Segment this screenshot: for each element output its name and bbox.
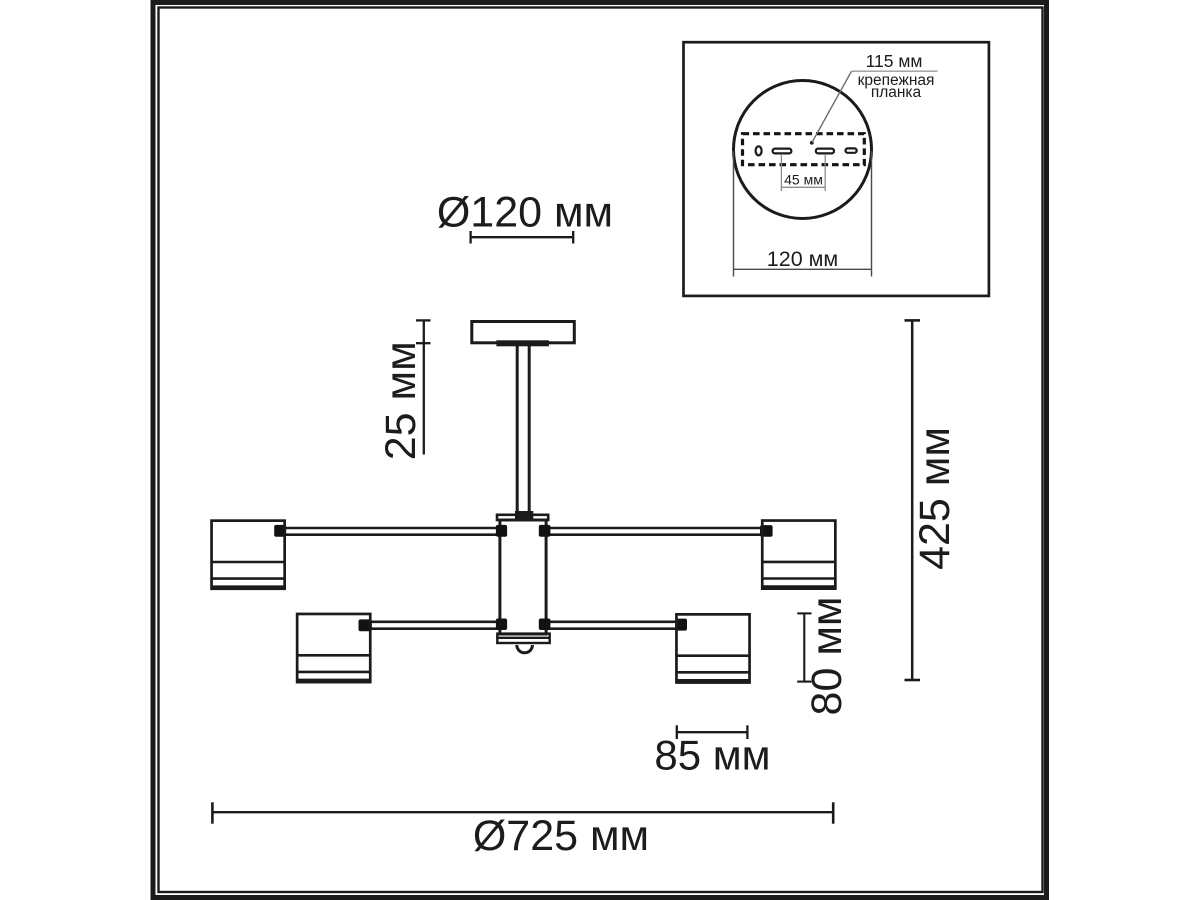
svg-text:425 мм: 425 мм [911, 427, 959, 570]
svg-text:Ø725 мм: Ø725 мм [473, 812, 649, 860]
svg-text:120 мм: 120 мм [767, 247, 838, 271]
svg-text:45 мм: 45 мм [784, 172, 823, 188]
svg-text:25 мм: 25 мм [377, 341, 425, 460]
svg-text:Ø120 мм: Ø120 мм [437, 189, 613, 237]
svg-text:планка: планка [871, 84, 922, 101]
svg-text:80 мм: 80 мм [803, 597, 851, 716]
svg-text:115 мм: 115 мм [866, 51, 923, 71]
svg-text:85 мм: 85 мм [654, 732, 770, 779]
